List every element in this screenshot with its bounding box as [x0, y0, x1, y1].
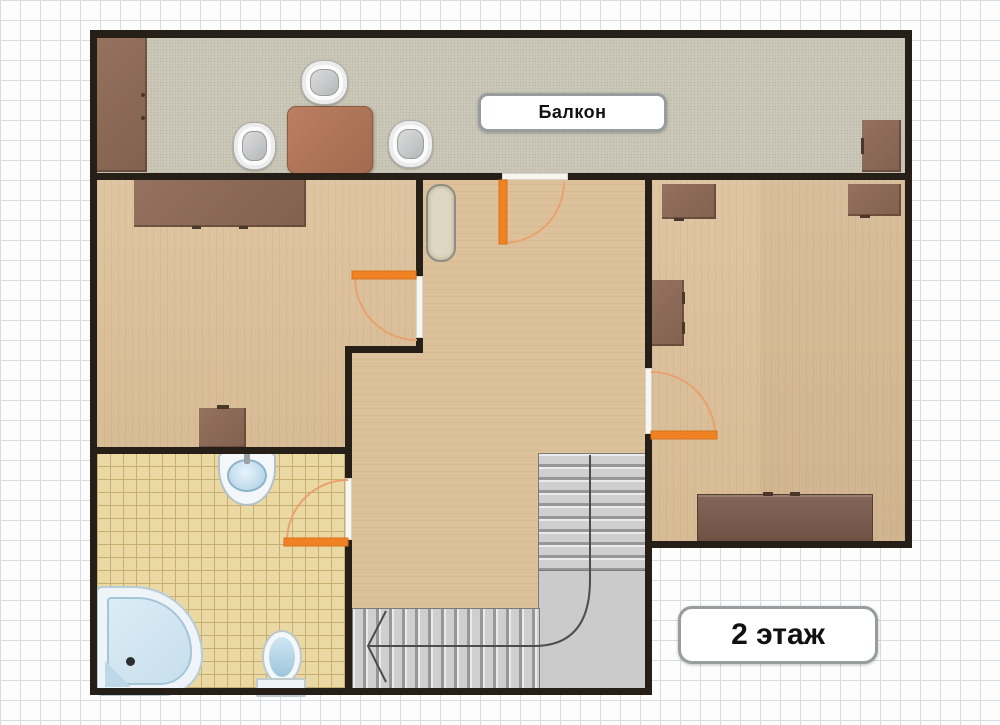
- stairs-landing: [538, 570, 647, 690]
- wall-bedroom-bottom: [645, 541, 912, 548]
- right-bedroom-floor-seam: [760, 180, 905, 541]
- balcony-label: Балкон: [478, 93, 667, 132]
- floor-label: 2 этаж: [678, 606, 878, 664]
- balcony-wardrobe: [97, 38, 147, 172]
- floorplan-canvas: Балкон 2 этаж: [0, 0, 1000, 725]
- floor-label-text: 2 этаж: [731, 618, 825, 652]
- balcony-table: [287, 106, 373, 174]
- hallway-radiator: [426, 184, 456, 262]
- stairs-upper-flight: [538, 453, 647, 572]
- toilet: [262, 630, 302, 684]
- right-bedroom-desk: [652, 280, 684, 346]
- left-bedroom-wardrobe: [134, 180, 306, 227]
- wall-outer-bottom: [90, 688, 652, 695]
- wall-bathroom-top: [90, 447, 352, 454]
- wall-outer-left: [90, 30, 97, 695]
- right-bedroom-dresser: [697, 494, 873, 545]
- door-opening-left-bedroom: [416, 276, 423, 338]
- stairs-lower-flight: [352, 608, 540, 690]
- balcony-chair-top: [301, 60, 348, 105]
- wall-outer-right: [905, 30, 912, 548]
- balcony-label-text: Балкон: [538, 102, 606, 123]
- door-opening-bathroom: [345, 478, 352, 540]
- wall-right-bedroom-left: [645, 173, 652, 695]
- wall-hall-jog: [348, 346, 423, 353]
- wall-outer-top: [90, 30, 912, 38]
- balcony-chair-right: [388, 120, 433, 168]
- door-opening-right-bedroom: [645, 368, 652, 434]
- balcony-cabinet: [862, 120, 901, 172]
- right-bedroom-nightstand-right: [848, 184, 901, 216]
- hallway-floor-upper: [423, 180, 645, 360]
- wall-balcony-divider: [90, 173, 912, 180]
- door-opening-balcony: [502, 173, 568, 180]
- left-bedroom-nightstand: [199, 408, 246, 448]
- balcony-chair-left: [233, 122, 276, 170]
- right-bedroom-nightstand-left: [662, 184, 716, 219]
